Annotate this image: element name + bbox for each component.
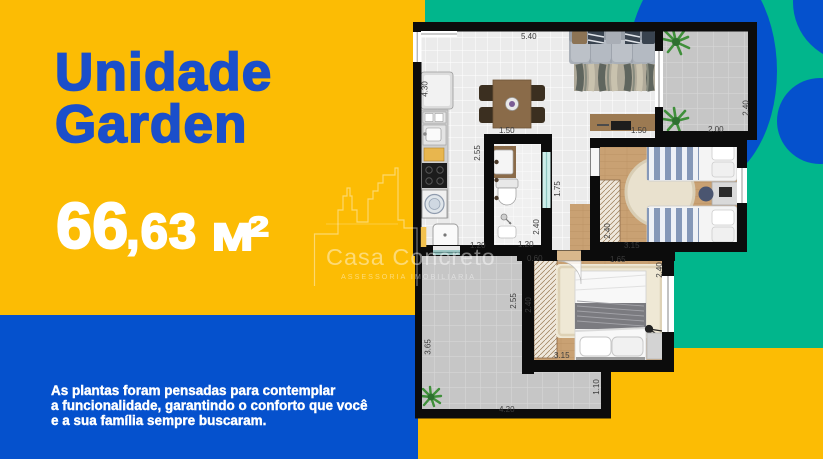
svg-text:4.30: 4.30 [421, 81, 430, 97]
svg-text:a funcionalidade, garantindo o: a funcionalidade, garantindo o conforto … [51, 398, 368, 413]
svg-text:ASSESSORIA IMOBILIARIA: ASSESSORIA IMOBILIARIA [341, 272, 476, 281]
svg-text:,63: ,63 [126, 205, 197, 259]
svg-text:1.50: 1.50 [631, 126, 647, 135]
svg-text:66: 66 [56, 189, 128, 262]
svg-text:1.50: 1.50 [499, 126, 515, 135]
svg-text:1.20: 1.20 [518, 240, 534, 249]
svg-text:4.20: 4.20 [499, 405, 515, 414]
svg-text:3.15: 3.15 [624, 241, 640, 250]
svg-text:Unidade: Unidade [55, 43, 272, 102]
svg-text:As plantas foram pensadas para: As plantas foram pensadas para contempla… [51, 383, 336, 398]
svg-text:3.15: 3.15 [554, 351, 570, 360]
svg-text:2.40: 2.40 [524, 297, 533, 313]
svg-text:0.60: 0.60 [527, 254, 543, 263]
svg-text:Casa Concreto: Casa Concreto [326, 244, 496, 270]
svg-text:2.00: 2.00 [708, 125, 724, 134]
svg-text:1.10: 1.10 [592, 379, 601, 395]
svg-text:5.40: 5.40 [521, 32, 537, 41]
svg-text:2.55: 2.55 [509, 293, 518, 309]
svg-text:2.40: 2.40 [655, 262, 664, 278]
svg-text:1.65: 1.65 [610, 255, 626, 264]
svg-text:3.65: 3.65 [424, 339, 433, 355]
svg-text:Garden: Garden [55, 95, 248, 154]
svg-text:e a sua família sempre buscara: e a sua família sempre buscaram. [51, 413, 266, 428]
svg-text:2.55: 2.55 [473, 145, 482, 161]
svg-text:2.40: 2.40 [603, 223, 612, 239]
svg-text:2.40: 2.40 [532, 219, 541, 235]
svg-text:M: M [212, 216, 253, 258]
svg-text:1.75: 1.75 [553, 181, 562, 197]
svg-text:2.40: 2.40 [742, 100, 751, 116]
svg-text:2: 2 [249, 211, 269, 242]
